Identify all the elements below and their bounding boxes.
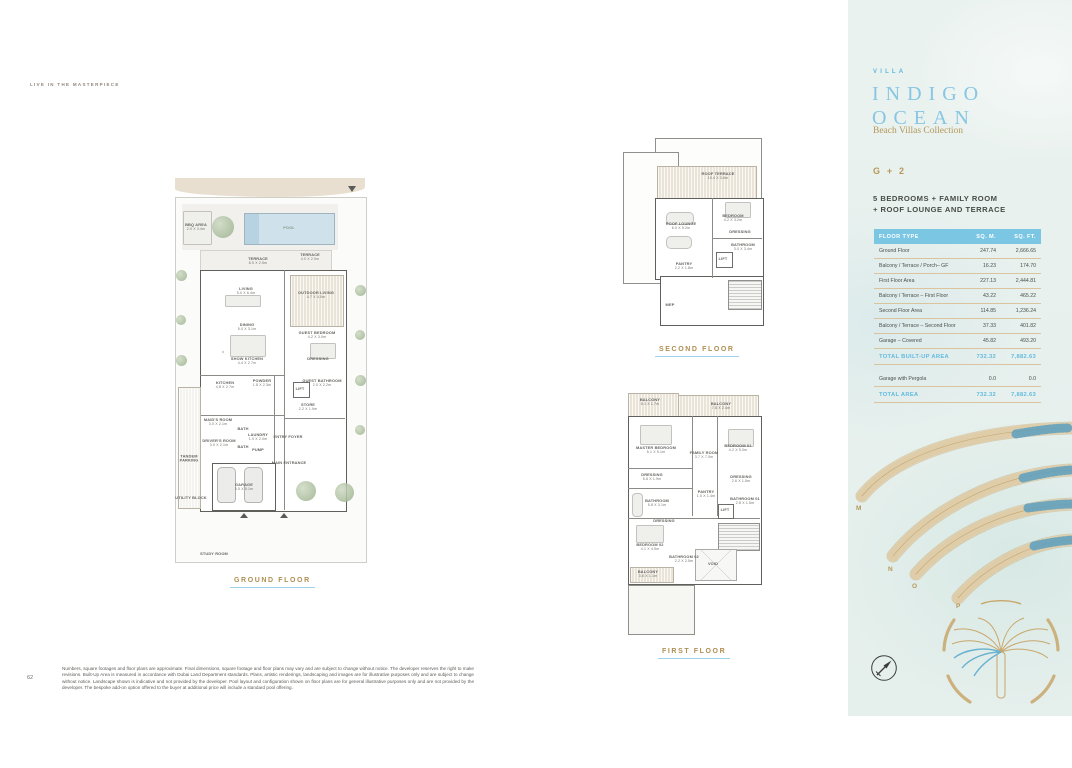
frond-label-n: N [888,566,893,573]
entry-arrow-icon [240,513,248,518]
guest-bed [310,343,336,359]
second-floor-plan: ROOF TERRACE10.4 X 3.6m ROOF LOUNGE6.0 X… [600,90,790,348]
first-floor-plan: BALCONY6.1 X 1.7m BALCONY7.8 X 2.4m MAST… [600,373,790,651]
bed [636,525,664,543]
table-row: Garage – Covered45.82493.20 [874,334,1041,349]
lift-shaft [716,252,733,268]
entry-arrow-icon [280,513,288,518]
table-header: FLOOR TYPE SQ. M. SQ. FT. [874,229,1041,244]
brand-title: INDIGO OCEAN [872,82,985,130]
ground-floor-plan: BBQ AREA2.0 X 3.4m POOL TERRACE8.5 X 2.5… [170,175,388,575]
sofa [225,295,261,307]
car [244,467,263,503]
outdoor-living-area [290,275,344,327]
staircase [718,523,760,551]
north-marker-icon [348,186,356,192]
frond-label-o: O [912,583,917,590]
frond-site-plan: M N O P [848,408,1072,618]
area-table: FLOOR TYPE SQ. M. SQ. FT. Ground Floor24… [874,229,1041,403]
lift-shaft [293,382,310,398]
bbq-area-box [183,211,212,245]
bathtub [632,493,643,517]
table-row: First Floor Area227.132,444.81 [874,274,1041,289]
roof-terrace-area [657,166,757,202]
table-row: Balcony / Terrace – Second Floor37.33401… [874,319,1041,334]
masthead-tagline: LIVE IN THE MASTERPIECE [30,82,120,87]
table-row: Balcony / Terrace / Porch– GF16.23174.70 [874,259,1041,274]
table-row: Second Floor Area114.851,236.24 [874,304,1041,319]
total-built-up-row: TOTAL BUILT-UP AREA732.327,882.63 [874,349,1041,365]
brochure-page: LIVE IN THE MASTERPIECE [0,0,1072,768]
total-area-row: TOTAL AREA732.327,882.63 [874,387,1041,403]
table-row: Balcony / Terrace – First Floor43.22465.… [874,289,1041,304]
second-floor-caption: SECOND FLOOR [655,346,739,357]
palm-island-logo [936,594,1066,716]
villa-type-code: G + 2 [873,166,906,176]
tandem-parking-strip [178,387,201,509]
header-sqft: SQ. FT. [996,234,1036,240]
balcony-area [630,567,674,583]
config-line1: 5 BEDROOMS + FAMILY ROOM [873,193,1006,204]
lounge-sofa [666,236,692,249]
lift-shaft [718,504,734,519]
bed [728,429,754,447]
bed [725,202,751,218]
header-floor-type: FLOOR TYPE [879,234,963,240]
car [217,467,236,503]
ground-floor-caption: GROUND FLOOR [230,577,315,588]
disclaimer-text: Numbers, square footages and floor plans… [62,666,474,692]
lounge-sofa [666,212,694,225]
table-row: Garage with Pergola0.00.0 [874,372,1041,387]
page-number: 62 [27,675,33,681]
dining-table [230,335,266,357]
void-area [695,549,737,581]
tree [212,216,234,238]
balcony-area [628,393,679,418]
compass-icon [869,653,899,683]
brand-title-line1: INDIGO [872,82,985,106]
brand-subtitle: Beach Villas Collection [873,126,963,136]
villa-configuration: 5 BEDROOMS + FAMILY ROOM + ROOF LOUNGE A… [873,193,1006,215]
first-floor-caption: FIRST FLOOR [658,648,730,659]
config-line2: + ROOF LOUNGE AND TERRACE [873,204,1006,215]
brand-eyebrow: VILLA [873,69,906,75]
master-bed [640,425,672,445]
brand-panel: VILLA INDIGO OCEAN Beach Villas Collecti… [848,0,1072,716]
beach-band [175,178,365,197]
staircase [728,280,762,310]
lower-roof-terrace [628,585,695,635]
frond-label-m: M [856,505,861,512]
table-row: Ground Floor247.742,666.65 [874,244,1041,259]
header-sqm: SQ. M. [963,234,996,240]
pool [244,213,335,245]
